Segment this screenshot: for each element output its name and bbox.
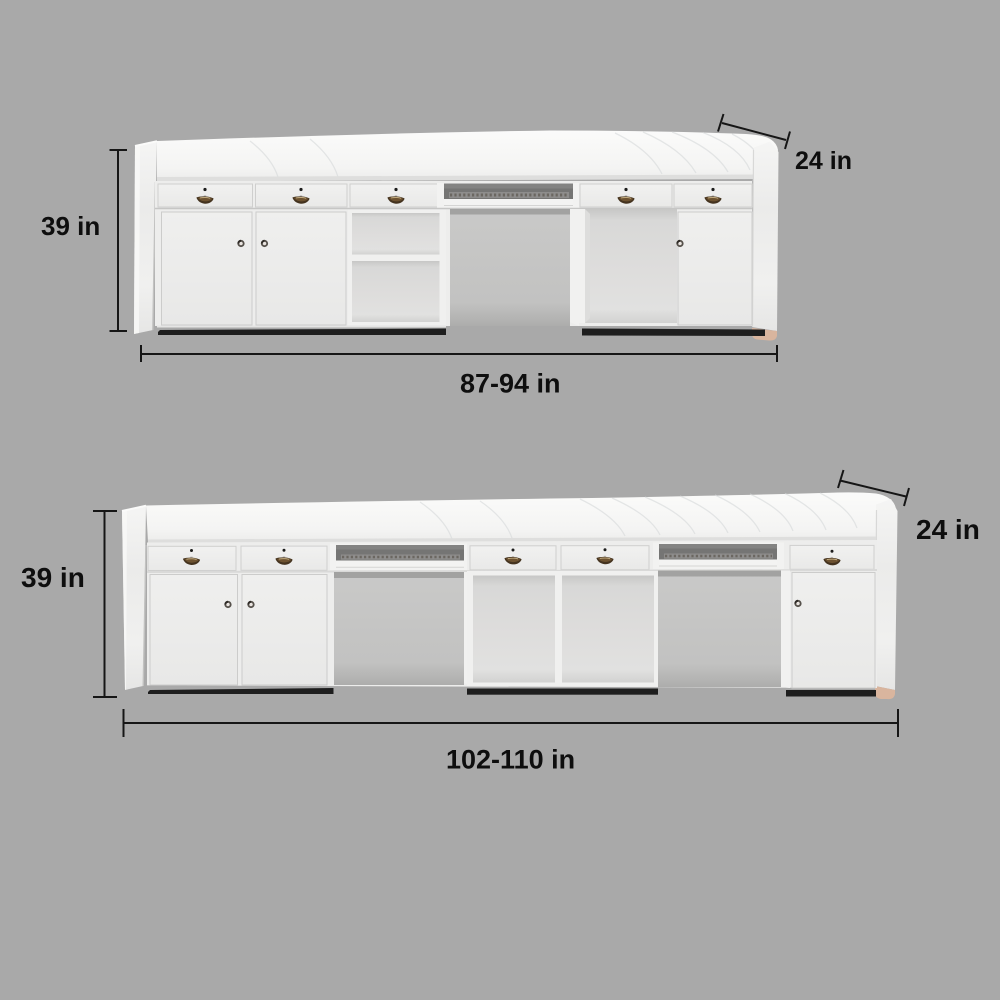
- svg-text:24 in: 24 in: [916, 514, 980, 545]
- svg-text:102-110 in: 102-110 in: [446, 745, 575, 775]
- svg-text:39 in: 39 in: [41, 211, 100, 241]
- svg-text:39 in: 39 in: [21, 562, 85, 593]
- svg-text:24 in: 24 in: [795, 147, 852, 175]
- svg-text:87-94 in: 87-94 in: [460, 369, 561, 399]
